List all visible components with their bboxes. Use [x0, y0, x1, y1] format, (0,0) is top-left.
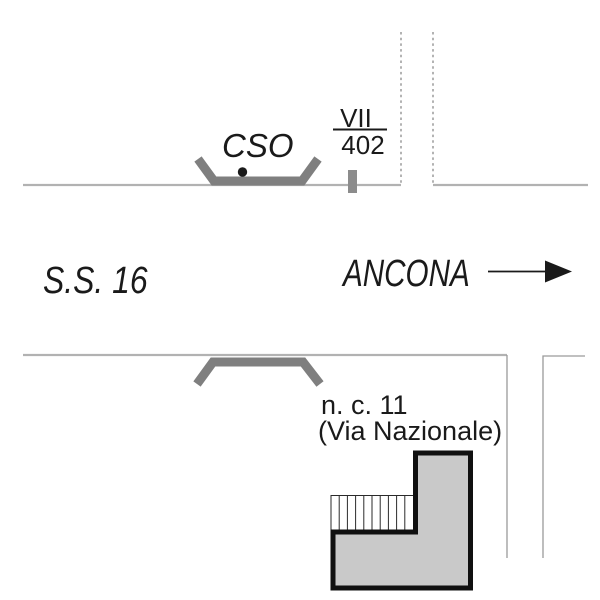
direction-city-label: ANCONA: [341, 253, 469, 295]
site-plan-page: CSO VII 402 S.S. 16 ANCONA n. c. 11 (Via…: [0, 0, 600, 600]
cso-label: CSO: [222, 127, 294, 164]
side-street-right-edge: [543, 356, 585, 558]
km-tick-icon: [348, 170, 357, 193]
km-marker-denominator: 402: [341, 130, 384, 160]
direction-arrow-icon: [488, 261, 572, 283]
stairs-hatch-icon: [331, 496, 416, 533]
site-plan-drawing: CSO VII 402 S.S. 16 ANCONA n. c. 11 (Via…: [0, 0, 600, 600]
highway-label: S.S. 16: [43, 259, 148, 301]
cso-point-icon: [238, 167, 247, 176]
gate-symbol-lower: [197, 362, 320, 384]
address-street-label: (Via Nazionale): [318, 416, 502, 446]
